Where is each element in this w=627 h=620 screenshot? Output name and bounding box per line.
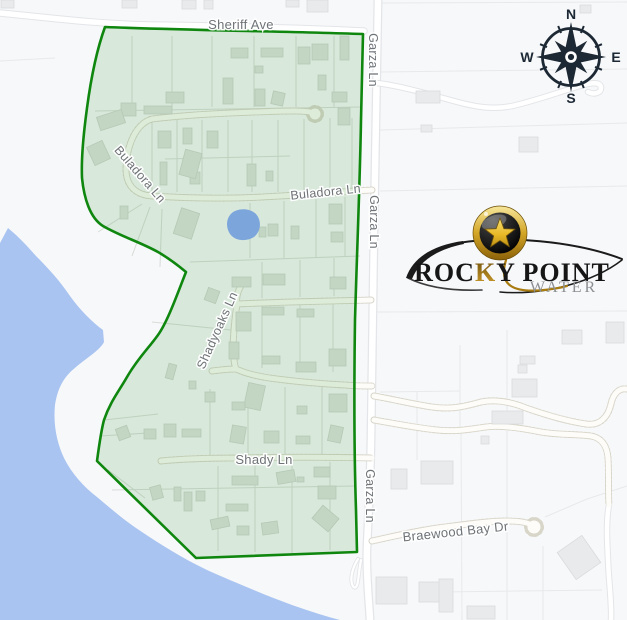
map-canvas: Sheriff Ave Garza Ln Garza Ln Garza Ln B… [0, 0, 627, 620]
street-label-shady-ln: Shady Ln [235, 452, 292, 467]
compass-s-label: S [566, 90, 575, 106]
compass-e-label: E [611, 49, 620, 65]
map-page: Sheriff Ave Garza Ln Garza Ln Garza Ln B… [0, 0, 627, 620]
logo-star-badge [473, 206, 527, 260]
street-label-sheriff-ave: Sheriff Ave [208, 17, 274, 32]
street-label-garza-ln-top: Garza Ln [366, 33, 380, 87]
road-bottom-right [607, 505, 611, 620]
street-label-garza-ln-mid: Garza Ln [367, 195, 381, 249]
compass-n-label: N [566, 6, 576, 22]
logo-water-label: WATER [530, 279, 598, 296]
street-label-garza-ln-bottom: Garza Ln [363, 469, 377, 523]
compass-w-label: W [520, 49, 534, 65]
pond [227, 209, 260, 240]
